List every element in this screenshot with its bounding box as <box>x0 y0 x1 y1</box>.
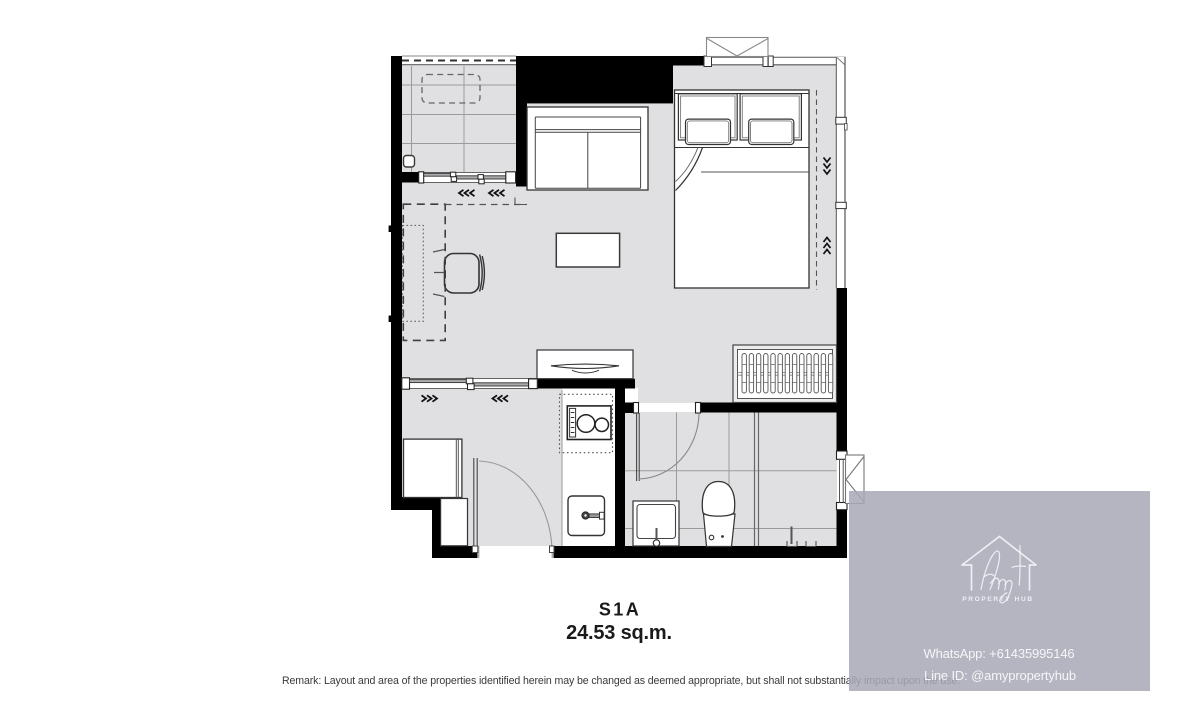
svg-text:24.53 sq.m.: 24.53 sq.m. <box>566 622 672 644</box>
svg-text:S1A: S1A <box>599 600 641 620</box>
svg-text:PROPERTY HUB: PROPERTY HUB <box>962 596 1033 603</box>
svg-text:Line ID: @amypropertyhub: Line ID: @amypropertyhub <box>924 668 1076 683</box>
svg-text:WhatsApp: +61435995146: WhatsApp: +61435995146 <box>923 646 1074 661</box>
